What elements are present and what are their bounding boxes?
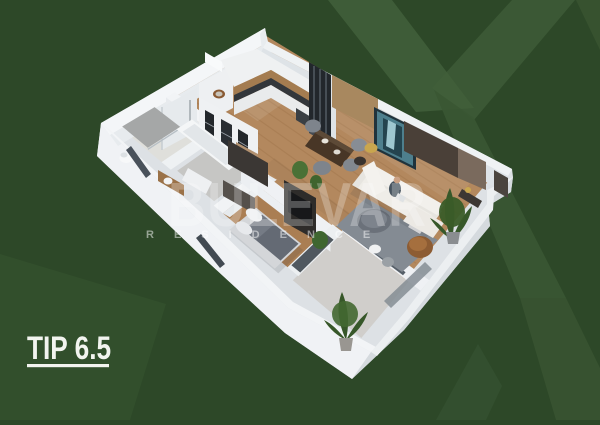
svg-text:RESIDENCE: RESIDENCE — [146, 229, 390, 241]
svg-text:TIP 6.5: TIP 6.5 — [27, 332, 111, 367]
